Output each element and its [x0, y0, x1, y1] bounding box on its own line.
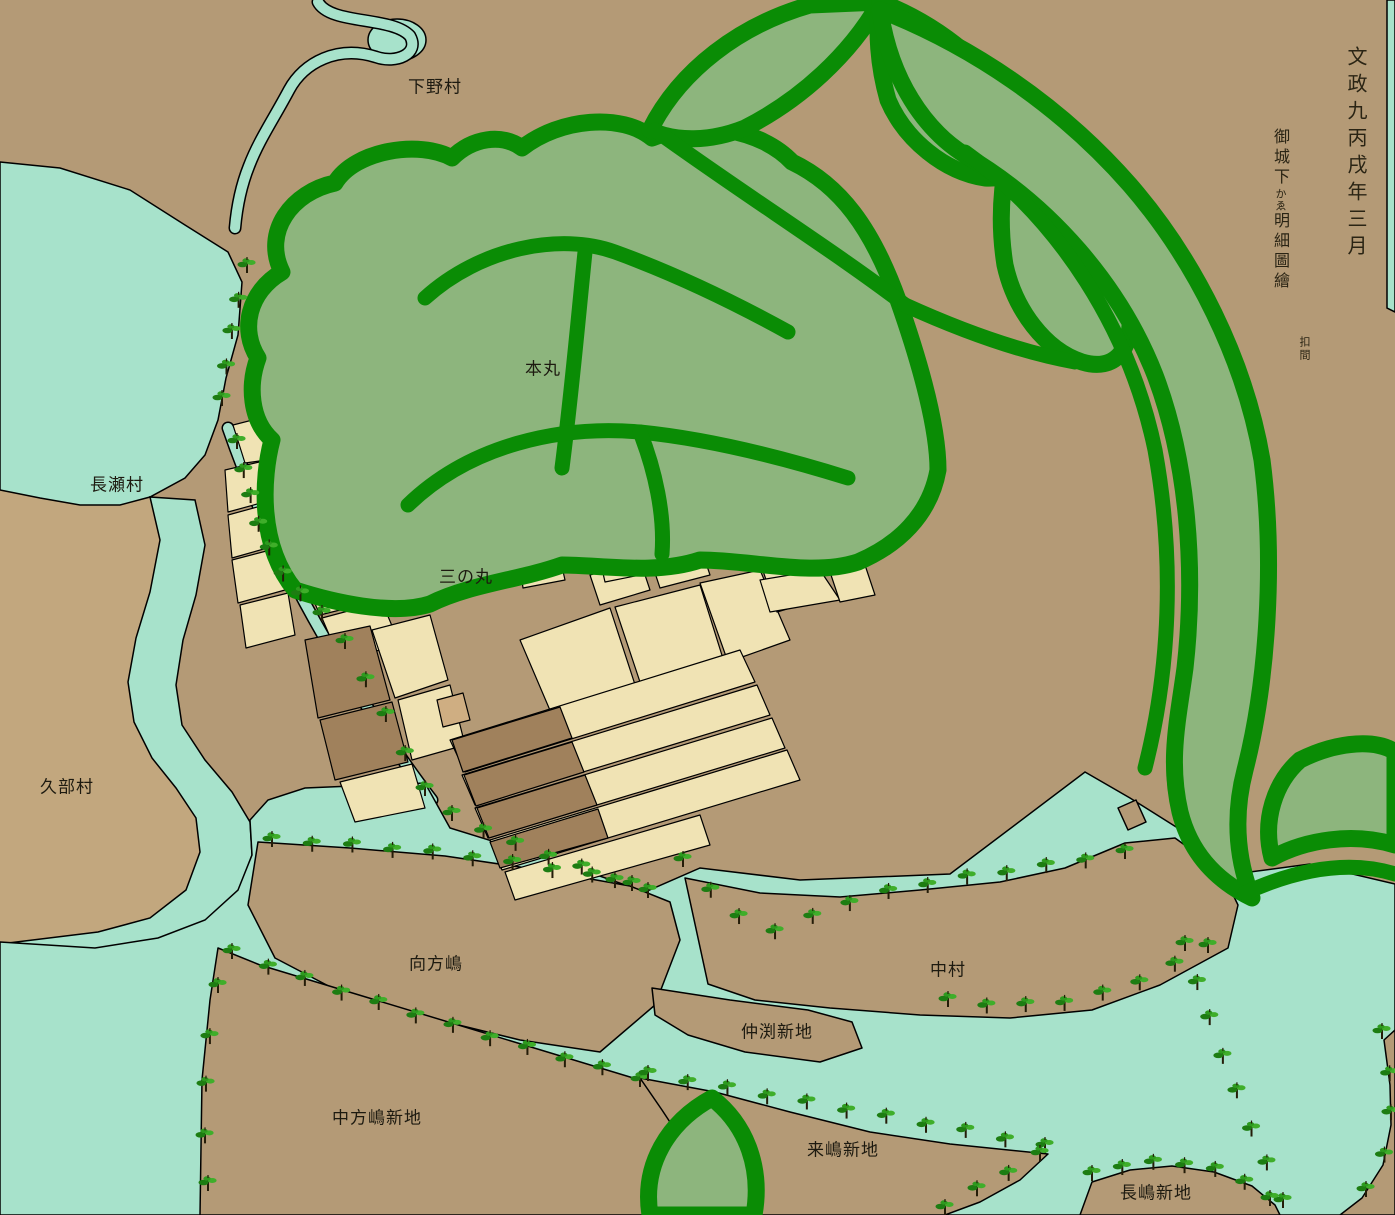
honmaru-hill: [249, 122, 938, 609]
map-title-part1: 御城下: [1271, 128, 1290, 188]
mukaikata-jima-label: 向方嶋: [409, 950, 463, 975]
map-title-small: かゑ: [1274, 188, 1287, 212]
nakakatajima-shinchi-label: 中方嶋新地: [332, 1104, 422, 1129]
map-svg: [0, 0, 1395, 1215]
castle-town-map: 下野村長瀬村久部村本丸三の丸向方嶋中村仲渕新地中方嶋新地来嶋新地長嶋新地 文政九…: [0, 0, 1395, 1215]
kurashima-shinchi-label: 来嶋新地: [807, 1136, 879, 1161]
sannomaru-label: 三の丸: [439, 563, 493, 588]
map-title-sub-annotation: 扣間: [1296, 336, 1312, 362]
kube-mura-label: 久部村: [40, 773, 94, 798]
nagashima-shinchi-label: 長嶋新地: [1120, 1179, 1192, 1204]
map-title-part2: 明細圖繪: [1271, 212, 1290, 292]
nagase-mura-label: 長瀬村: [90, 471, 144, 496]
shimono-mura-label: 下野村: [408, 73, 462, 98]
nakabuchi-shinchi-label: 仲渕新地: [741, 1018, 813, 1043]
map-title-annotation: 御城下かゑ明細圖繪: [1268, 128, 1292, 292]
honmaru-label: 本丸: [525, 355, 561, 380]
map-date-annotation: 文政九丙戌年三月: [1342, 46, 1371, 262]
naka-mura-label: 中村: [930, 956, 966, 981]
